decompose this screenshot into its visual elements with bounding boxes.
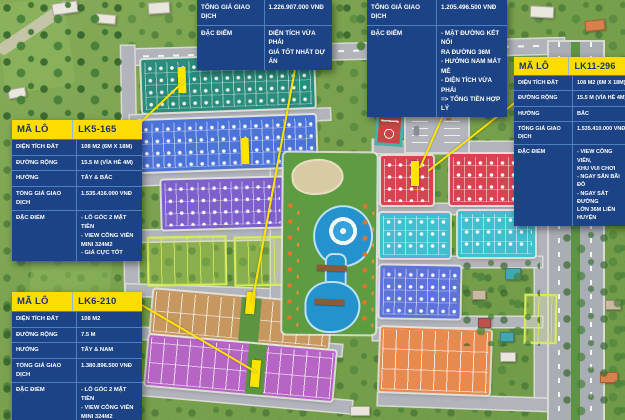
row-value: 1.226.907.000 VNĐ (265, 0, 333, 25)
lot-code: LK6-210 (73, 292, 121, 311)
row-label: ĐƯỜNG RỘNG (12, 328, 77, 343)
row-value: 1.205.496.500 VNĐ (437, 0, 507, 25)
row-value: TÂY & NAM (77, 343, 142, 358)
highlighted-lot-blue-block (241, 138, 250, 164)
card-title: MÃ LÔ (12, 292, 73, 311)
row-label: ĐƯỜNG RỘNG (514, 91, 573, 105)
card-row: TỔNG GIÁ GIAO DỊCH 1.205.496.500 VNĐ (367, 0, 507, 25)
row-value: 15.5 M (VỈA HÈ 4M) (573, 91, 625, 105)
vacant-lot-outlined (147, 235, 228, 286)
card-title: MÃ LÔ (12, 120, 73, 139)
row-value: 1.380.896.500 VNĐ (77, 359, 142, 382)
row-value: - MẶT ĐƯỜNG KẾT NỐI RA ĐƯỜNG 36M - HƯỚNG… (437, 26, 507, 117)
row-value: 108 M2 (77, 312, 142, 327)
card-row: TỔNG GIÁ GIAO DỊCH 1.535.410.000 VNĐ (514, 121, 625, 145)
card-header: MÃ LÔ LK6-210 (12, 292, 142, 311)
row-label: TỔNG GIÁ GIAO DỊCH (197, 0, 265, 25)
row-value: 15.5 M (VỈA HÈ 4M) (77, 156, 142, 171)
row-value: - LÔ GÓC 2 MẶT TIỀN - VIEW CÔNG VIÊN MIN… (77, 211, 142, 260)
card-row: HƯỚNG BẮC (514, 106, 625, 121)
row-label: HƯỚNG (12, 171, 77, 186)
row-label: DIỆN TÍCH ĐẤT (12, 312, 77, 327)
card-row: ĐƯỜNG RỘNG 7.5 M (12, 327, 142, 343)
residential-block-blue-right (380, 265, 461, 318)
row-label: HƯỚNG (514, 107, 573, 121)
row-label: HƯỚNG (12, 343, 77, 358)
row-value: 108 M2 (6M X 18M) (77, 140, 142, 155)
row-label: DIỆN TÍCH ĐẤT (12, 140, 77, 155)
playground-sandpit (290, 156, 345, 197)
lot-card-top-middle: TỔNG GIÁ GIAO DỊCH 1.205.496.500 VNĐ ĐẶC… (367, 0, 507, 117)
row-value: DIỆN TÍCH VỪA PHẢI GIÁ TỐT NHẤT DỰ ÁN (265, 26, 333, 70)
row-label: TỔNG GIÁ GIAO DỊCH (367, 0, 437, 25)
card-header: MÃ LÔ LK5-165 (12, 120, 142, 139)
house (148, 1, 171, 15)
row-value: 1.535.410.000 VNĐ (573, 122, 625, 145)
highlighted-lot-red-block (411, 161, 419, 186)
lot-card-lk5-165: MÃ LÔ LK5-165 DIỆN TÍCH ĐẤT 108 M2 (6M X… (12, 120, 142, 261)
row-label: ĐẶC ĐIỂM (514, 145, 573, 225)
row-label: ĐẶC ĐIỂM (12, 211, 77, 260)
row-value: TÂY & BẮC (77, 171, 142, 186)
card-row: ĐẶC ĐIỂM - LÔ GÓC 2 MẶT TIỀN - VIEW CÔNG… (12, 210, 142, 260)
row-label: TỔNG GIÁ GIAO DỊCH (12, 359, 77, 382)
card-row: ĐẶC ĐIỂM - VIEW CÔNG VIÊN, KHU VUI CHƠI … (514, 144, 625, 225)
row-label: TỔNG GIÁ GIAO DỊCH (514, 122, 573, 145)
central-park (282, 153, 377, 335)
lot-card-top-left: TỔNG GIÁ GIAO DỊCH 1.226.907.000 VNĐ ĐẶC… (197, 0, 332, 70)
row-label: ĐƯỜNG RỘNG (12, 156, 77, 171)
house (584, 19, 605, 32)
tree-cluster (460, 258, 540, 346)
lot-code: LK5-165 (73, 120, 121, 139)
card-row: ĐẶC ĐIỂM - MẶT ĐƯỜNG KẾT NỐI RA ĐƯỜNG 36… (367, 25, 507, 117)
card-row: HƯỚNG TÂY & NAM (12, 342, 142, 358)
flower-bed (359, 201, 374, 329)
park-bridge (317, 264, 347, 271)
pool-lower (304, 281, 360, 333)
card-row: ĐƯỜNG RỘNG 15.5 M (VỈA HÈ 4M) (514, 90, 625, 105)
row-value: - VIEW CÔNG VIÊN, KHU VUI CHƠI - NGAY SÂ… (573, 145, 625, 225)
row-label: ĐẶC ĐIỂM (367, 26, 437, 117)
row-label: TỔNG GIÁ GIAO DỊCH (12, 187, 77, 210)
row-value: 7.5 M (77, 328, 142, 343)
tree-cluster (0, 0, 125, 130)
flower-bed (284, 201, 299, 329)
fountain (325, 213, 361, 249)
card-row: ĐẶC ĐIỂM DIỆN TÍCH VỪA PHẢI GIÁ TỐT NHẤT… (197, 25, 332, 70)
card-header: MÃ LÔ LK11-296 (514, 57, 625, 75)
tree-cluster (560, 230, 625, 420)
card-row: DIỆN TÍCH ĐẤT 108 M2 (6M X 18M) (12, 139, 142, 155)
card-row: TỔNG GIÁ GIAO DỊCH 1.535.416.000 VNĐ (12, 186, 142, 210)
lot-card-lk6-210: MÃ LÔ LK6-210 DIỆN TÍCH ĐẤT 108 M2 ĐƯỜNG… (12, 292, 142, 420)
row-value: 1.535.416.000 VNĐ (77, 187, 142, 210)
card-row: HƯỚNG TÂY & BẮC (12, 170, 142, 186)
card-row: ĐƯỜNG RỘNG 15.5 M (VỈA HÈ 4M) (12, 155, 142, 171)
row-value: BẮC (573, 107, 625, 121)
park-bridge (314, 298, 344, 305)
row-value: 108 M2 (6M X 18M) (573, 76, 625, 90)
row-label: DIỆN TÍCH ĐẤT (514, 76, 573, 90)
row-label: ĐẶC ĐIỂM (197, 26, 265, 70)
card-row: DIỆN TÍCH ĐẤT 108 M2 (6M X 18M) (514, 75, 625, 90)
card-title: MÃ LÔ (514, 57, 569, 75)
lot-card-lk11-296: MÃ LÔ LK11-296 DIỆN TÍCH ĐẤT 108 M2 (6M … (514, 57, 625, 226)
house (530, 5, 555, 18)
row-value: - LÔ GÓC 2 MẶT TIỀN - VIEW CÔNG VIÊN MIN… (77, 383, 142, 420)
car (414, 126, 419, 135)
residential-block-cyan-west (380, 213, 450, 258)
card-row: TỔNG GIÁ GIAO DỊCH 1.226.907.000 VNĐ (197, 0, 332, 25)
card-row: TỔNG GIÁ GIAO DỊCH 1.380.896.500 VNĐ (12, 358, 142, 382)
row-label: ĐẶC ĐIỂM (12, 383, 77, 420)
lot-code: LK11-296 (569, 57, 620, 75)
site-plan: TỔNG GIÁ GIAO DỊCH 1.226.907.000 VNĐ ĐẶC… (0, 0, 625, 420)
house (500, 352, 516, 362)
card-row: ĐẶC ĐIỂM - LÔ GÓC 2 MẶT TIỀN - VIEW CÔNG… (12, 382, 142, 420)
house (350, 406, 370, 416)
residential-block-red-west (381, 156, 433, 205)
card-row: DIỆN TÍCH ĐẤT 108 M2 (12, 311, 142, 327)
